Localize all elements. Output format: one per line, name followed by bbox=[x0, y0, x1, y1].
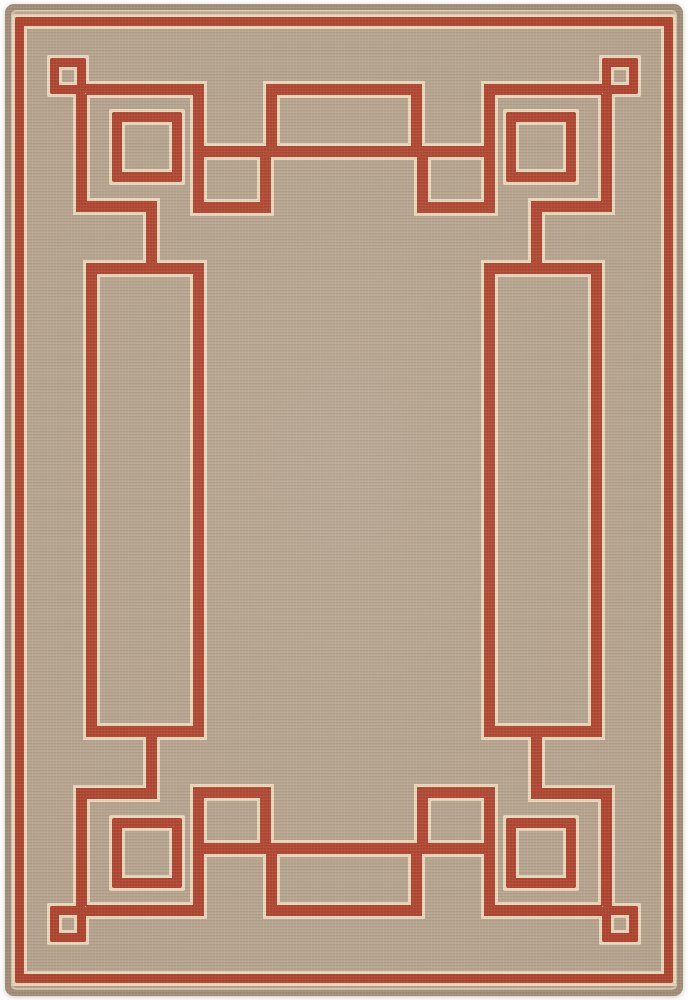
pendant-inner-vertical bbox=[260, 157, 271, 213]
bridge-outer-bar bbox=[266, 905, 422, 916]
corner-arm-vertical bbox=[76, 788, 87, 906]
corner-small-square bbox=[50, 58, 86, 94]
corner-medium-square bbox=[506, 112, 576, 182]
side-zigzag-bar bbox=[91, 726, 204, 737]
inner-frame-vertical bbox=[193, 263, 204, 737]
corner-small-square bbox=[602, 906, 638, 942]
inner-frame-horizontal bbox=[193, 843, 495, 854]
corner-medium-square bbox=[112, 818, 182, 888]
bridge-outer-bar bbox=[266, 84, 422, 95]
corner-small-square bbox=[50, 906, 86, 942]
corner-arm-vertical bbox=[76, 94, 87, 212]
pendant-bottom-bar bbox=[417, 202, 495, 213]
side-zigzag-bar bbox=[91, 263, 204, 274]
inner-frame-vertical bbox=[484, 263, 495, 737]
corner-medium-square bbox=[112, 112, 182, 182]
rug-product-photo bbox=[0, 0, 688, 1000]
side-outer-long-vertical bbox=[86, 263, 97, 737]
pendant-bottom-bar bbox=[417, 787, 495, 798]
pendant-inner-vertical bbox=[417, 787, 428, 843]
side-outer-long-vertical bbox=[591, 263, 602, 737]
corner-step-horizontal bbox=[76, 201, 157, 212]
side-zigzag-bar bbox=[484, 263, 597, 274]
side-zigzag-bar bbox=[484, 726, 597, 737]
corner-arm-horizontal bbox=[484, 905, 602, 916]
corner-step-horizontal bbox=[531, 201, 612, 212]
pendant-inner-vertical bbox=[417, 157, 428, 213]
corner-arm-horizontal bbox=[86, 84, 204, 95]
corner-arm-vertical bbox=[601, 94, 612, 212]
corner-step-horizontal bbox=[76, 788, 157, 799]
corner-small-square bbox=[602, 58, 638, 94]
rug bbox=[5, 4, 683, 996]
corner-step-horizontal bbox=[531, 788, 612, 799]
corner-arm-vertical bbox=[601, 788, 612, 906]
corner-arm-horizontal bbox=[86, 905, 204, 916]
corner-medium-square bbox=[506, 818, 576, 888]
corner-arm-horizontal bbox=[484, 84, 602, 95]
inner-frame-horizontal bbox=[193, 146, 495, 157]
pattern-red-layer bbox=[5, 4, 683, 996]
pendant-inner-vertical bbox=[260, 787, 271, 843]
